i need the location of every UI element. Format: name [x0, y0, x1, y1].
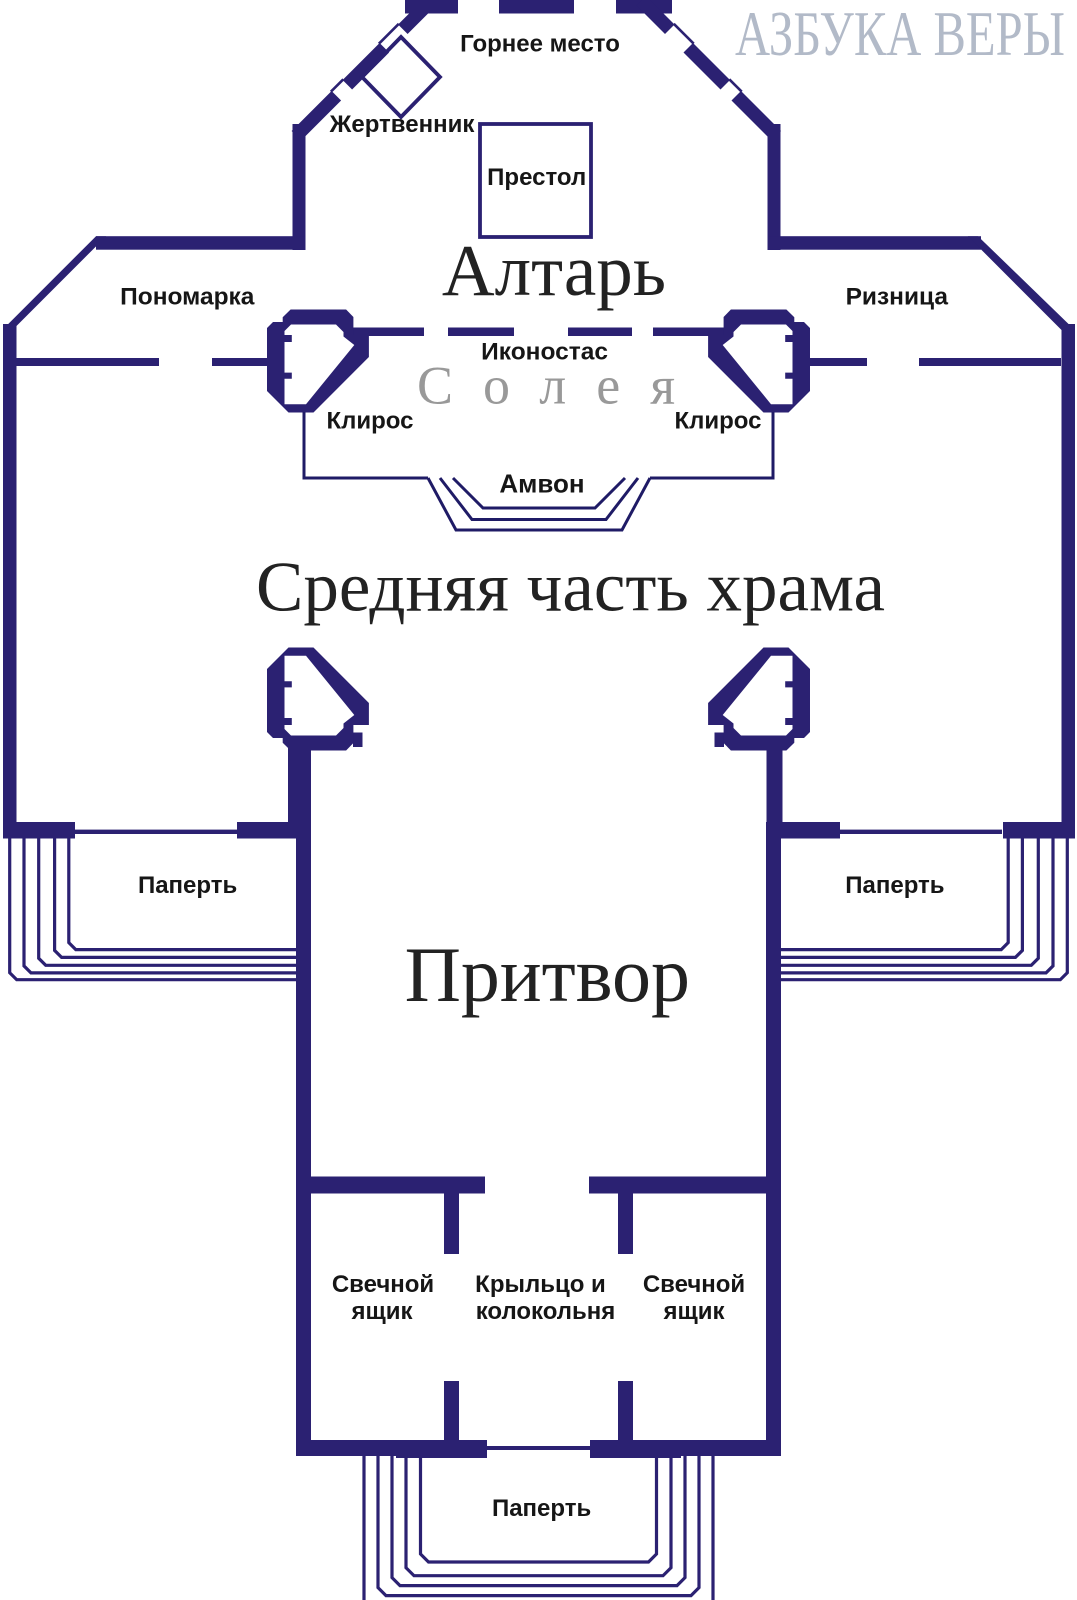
svg-text:Жертвенник: Жертвенник [329, 111, 476, 138]
svg-text:Клирос: Клирос [675, 408, 762, 435]
svg-text:Паперть: Паперть [492, 1495, 591, 1522]
svg-text:Клирос: Клирос [327, 408, 414, 435]
svg-text:Притвор: Притвор [405, 931, 690, 1018]
svg-text:Солея: Солея [417, 356, 705, 416]
svg-text:Средняя часть храма: Средняя часть храма [256, 549, 885, 627]
svg-text:Амвон: Амвон [499, 469, 584, 499]
svg-text:Алтарь: Алтарь [442, 230, 666, 311]
svg-text:Престол: Престол [487, 164, 586, 191]
svg-text:Горнее место: Горнее место [460, 31, 620, 58]
svg-text:Крыльцо иколокольня: Крыльцо иколокольня [475, 1271, 615, 1325]
svg-text:АЗБУКА ВЕРЫ: АЗБУКА ВЕРЫ [735, 0, 1065, 69]
svg-text:Ризница: Ризница [846, 284, 949, 311]
svg-text:Паперть: Паперть [138, 872, 237, 899]
svg-text:Пономарка: Пономарка [120, 284, 255, 311]
svg-text:Паперть: Паперть [845, 872, 944, 899]
